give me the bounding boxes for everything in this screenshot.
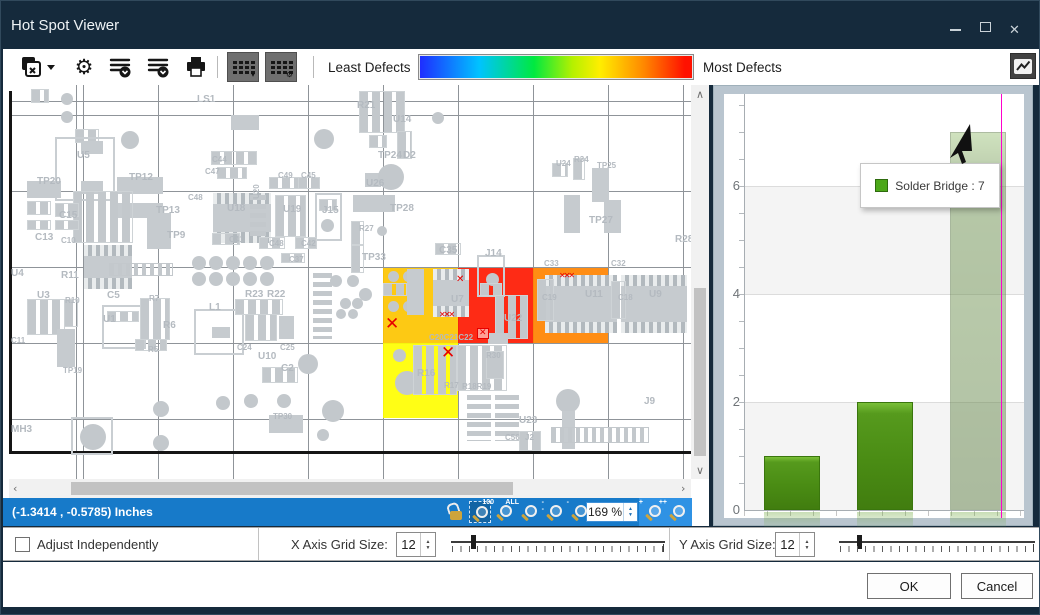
pcb-component [377,226,387,236]
grid-apply-icon [233,61,237,64]
settings-button[interactable]: ⚙ [69,53,99,81]
pcb-label: C44 [212,156,227,164]
y-axis-grid-size-value: 12 [776,533,799,556]
pcb-label: R21 [357,101,375,111]
y-axis-grid-size-label: Y Axis Grid Size: [679,537,776,552]
zoom-out-double-icon[interactable]: -- [544,501,566,523]
pcb-label: U1 [103,315,116,325]
slider-track[interactable] [839,541,1035,543]
pcb-component [109,263,173,276]
pcb-component [317,429,329,441]
settings-gear-icon: ⚙ [75,57,94,78]
pcb-label: R28 [675,235,691,245]
zoom-percent-value: 169 % [587,503,623,521]
pcb-component [217,167,247,179]
pcb-label: C48 [188,194,203,202]
pcb-component [212,327,230,338]
pcb-component [352,298,363,309]
pcb-label: TP24 [378,151,402,161]
pcb-component [551,427,649,443]
pcb-label: R6 [163,321,176,331]
pcb-label: R7 [149,295,159,303]
pcb-label: U18 [227,204,245,214]
pcb-label: TP28 [390,204,414,214]
chart-tooltip: Solder Bridge : 7 [860,163,1000,208]
cursor-coordinates: (-1.3414 , -0.5785) Inches [12,505,153,519]
pcb-component [348,309,358,319]
defect-marker-icon[interactable]: ✕✕✕ [439,311,453,319]
pcb-label: J2 [525,434,534,442]
pcb-component [330,275,342,287]
pcb-component [80,424,106,450]
most-defects-label: Most Defects [703,49,782,85]
close-button[interactable]: ✕ [1009,21,1023,33]
pcb-label: MH3 [11,425,32,435]
pcb-label: R34 [574,156,589,164]
pcb-label: U9 [649,290,662,300]
zoom-percent-spinner[interactable]: 169 % ▲▼ [586,502,638,522]
mouse-cursor-icon [946,122,976,171]
pcb-component [313,273,332,339]
pcb-component [61,93,73,105]
pcb-label: R27 [359,225,374,233]
pcb-label: U3 [37,291,50,301]
chart-crosshair-line [1001,94,1002,518]
pcb-component [216,396,230,410]
pcb-component [545,275,617,333]
pcb-label: C47 [205,168,220,176]
pcb-label: C18 [618,294,633,302]
y-axis-line [744,94,745,510]
pcb-component [192,272,206,286]
defect-bar-chart[interactable]: 0246Solder Bridge : 7 [724,94,1024,518]
y-axis-grid-size-spinner[interactable]: 12 ▲▼ [775,532,815,557]
pcb-canvas[interactable]: LS1U5TP20TP12TP13TP9C15C13C10R11U3R10U1C… [9,85,691,479]
divider [258,528,259,560]
pcb-label: U23 [519,416,537,426]
pcb-component [57,329,75,367]
pcb-label: U11 [585,290,603,300]
pcb-label: J14 [485,249,502,259]
pcb-component [231,115,259,130]
pcb-label: C33 [544,260,559,268]
print-icon [184,56,208,78]
pcb-component [621,275,687,333]
pcb-label: C20C21C22 [429,334,473,342]
pcb-component [192,256,206,270]
close-icon: ✕ [1009,23,1020,38]
adjust-independently-checkbox[interactable] [15,537,30,552]
pcb-label: C48 [269,240,284,248]
pcb-label: C49 [278,172,293,180]
divider [669,528,670,560]
pcb-label: TP12 [129,173,153,183]
adjust-independently-label: Adjust Independently [37,537,158,552]
pcb-label: J9 [644,397,655,407]
pcb-label: C37 [289,256,304,264]
pcb-component [556,389,580,413]
y-axis-tick-label: 6 [724,178,740,193]
horizontal-scroll-thumb[interactable] [71,482,513,495]
slider-track[interactable] [451,541,665,543]
pcb-component [314,129,334,149]
pcb-component [27,220,51,230]
toolbar-separator [313,56,314,78]
pcb-component [260,272,274,286]
x-axis-grid-size-spinner[interactable]: 12 ▲▼ [396,532,436,557]
pcb-label: C19 [542,294,557,302]
pcb-component [243,272,257,286]
pcb-label: C5 [107,291,120,301]
chart-toggle-icon [1012,56,1034,76]
pcb-label: U20 [253,184,261,199]
slider-ticks [452,546,664,552]
pcb-label: U26 [366,179,384,189]
pcb-label: U14 [393,115,411,125]
pcb-label: C24 [237,344,252,352]
pcb-label: R16 [417,369,435,379]
pcb-component [61,111,73,123]
pcb-label: TP9 [167,231,185,241]
pcb-label: U7 [451,295,464,305]
y-axis-tick-label: 0 [724,502,740,517]
pcb-component [244,394,258,408]
pcb-label: R30 [486,352,501,360]
scroll-left-icon[interactable]: ‹ [13,483,17,494]
pcb-viewer-panel: LS1U5TP20TP12TP13TP9C15C13C10R11U3R10U1C… [3,85,709,526]
pcb-component [153,435,169,451]
pcb-label: C32 [611,260,626,268]
pcb-label: C15 [59,211,77,221]
pcb-component [322,400,344,422]
pcb-label: C45 [301,172,316,180]
grid-apply-button[interactable]: ▾ [227,52,259,82]
pcb-component [359,91,405,133]
pcb-label: C35 [439,246,457,256]
grid-settings-badge-icon: ⚙ [286,71,293,79]
layers-export-icon [19,56,43,78]
footer: OK Cancel [3,562,1039,607]
ok-button[interactable]: OK [867,573,951,599]
pcb-label: J15 [322,206,339,216]
pcb-component [393,349,406,362]
hot-spot-viewer-window: Hot Spot Viewer ✕ ⚙ [0,0,1040,615]
pcb-component [321,219,334,232]
chart-bar[interactable] [764,456,820,510]
pcb-label: TP30 [273,413,292,421]
pcb-component [347,275,359,287]
pcb-label: U10 [258,352,276,362]
pcb-label: D2 [403,151,416,161]
grid-size-controls: Adjust Independently X Axis Grid Size: 1… [3,527,1039,561]
spinner-arrows-icon[interactable]: ▲▼ [799,533,814,556]
pcb-component [275,195,306,237]
pcb-component [153,401,169,417]
pcb-label: C25 [280,344,295,352]
pcb-component [592,168,609,202]
spinner-arrows-icon[interactable]: ▲▼ [623,503,637,521]
status-bar: (-1.3414 , -0.5785) Inches 169 % ▲▼ 100A… [3,498,692,526]
pcb-component [298,354,318,374]
pcb-component [260,256,274,270]
maximize-button[interactable] [979,21,993,33]
pcb-component [27,201,51,215]
tooltip-text: Solder Bridge : 7 [895,179,984,193]
pcb-component [245,314,277,341]
title-bar: Hot Spot Viewer [1,1,1039,49]
pcb-component [279,316,294,339]
pcb-component [388,271,399,282]
defect-source-icon [108,56,132,78]
minimize-icon [950,29,961,31]
zoom-in-double-icon[interactable]: ++ [667,501,689,523]
pcb-component [226,272,240,286]
pcb-label: C11 [11,337,25,345]
pcb-label: U19 [283,205,301,215]
pcb-label: R18R19 [462,383,491,391]
y-axis-tick-label: 4 [724,286,740,301]
pcb-label: TP20 [37,177,61,187]
pcb-component [277,394,291,408]
dropdown-caret-icon [47,65,55,70]
pcb-label: R22 [267,290,285,300]
y-axis-grid-size-slider[interactable] [839,531,1035,559]
pcb-label: R5 [148,346,158,354]
pcb-label: C56 [505,434,520,442]
print-button[interactable] [179,53,213,81]
defect-marker-icon[interactable]: ✕✕✕ [559,272,573,280]
pcb-component [121,131,139,149]
scroll-down-icon[interactable]: ∨ [696,465,704,476]
pcb-component [73,191,133,243]
pcb-label: C10 [61,237,76,245]
pcb-component [383,283,407,296]
unlock-icon[interactable] [444,501,466,523]
grid-settings-icon [271,61,275,64]
pcb-label: TP13 [156,206,180,216]
pcb-component [353,195,395,212]
horizontal-scrollbar[interactable]: ‹ › [9,479,691,498]
spinner-arrows-icon[interactable]: ▲▼ [420,533,435,556]
defect-source-alt-icon [146,56,170,78]
y-axis-tick-label: 2 [724,394,740,409]
pcb-label: R11 [61,271,79,281]
pcb-label: TP25 [597,162,616,170]
pcb-component [209,256,223,270]
defect-source-button[interactable] [103,53,137,81]
pcb-component [235,299,283,315]
pcb-label: U24 [556,160,571,168]
pcb-label: R17 [444,382,459,390]
vertical-scroll-thumb[interactable] [694,288,706,456]
pcb-component [226,256,240,270]
defect-marker-icon[interactable]: ✕ [456,275,464,285]
least-defects-label: Least Defects [328,49,411,85]
x-axis-grid-size-value: 12 [397,533,420,556]
defect-marker-icon[interactable]: ✕ [441,345,455,361]
export-defects-button[interactable] [15,53,59,81]
pcb-label: TP27 [589,216,613,226]
pcb-component [250,195,266,239]
pcb-component [467,395,491,441]
toolbar: ⚙ ▾ ⚙ [3,49,1039,85]
chart-toggle-button[interactable] [1010,53,1036,79]
maximize-icon [980,22,991,32]
toolbar-separator [217,56,218,78]
pcb-label: LS1 [197,95,215,105]
defect-marker-icon[interactable]: ✕ [477,328,489,339]
chart-bar[interactable] [857,402,913,510]
pcb-component [407,269,424,315]
zoom-out-icon[interactable]: - [569,501,591,523]
pcb-label: R10 [65,297,80,305]
pcb-component [564,195,580,233]
pcb-label: U5 [77,151,90,161]
legend-swatch-icon [875,179,888,192]
pcb-component [55,220,79,230]
pcb-component [209,272,223,286]
pcb-label: TP33 [362,253,386,263]
window-controls: ✕ [949,21,1023,33]
pcb-component [336,309,346,319]
cancel-button[interactable]: Cancel [961,573,1033,599]
defect-color-scale [418,54,694,80]
grid-apply-badge-icon: ▾ [251,71,255,79]
pcb-label: TP19 [63,367,82,375]
pcb-label: L1 [209,303,221,313]
pcb-component [488,333,508,344]
pcb-label: C42 [301,240,316,248]
pcb-label: C2 [281,364,294,374]
pcb-label: U4 [11,269,24,279]
scroll-up-icon[interactable]: ∧ [696,89,704,100]
x-axis-grid-size-slider[interactable] [451,531,665,559]
x-axis-grid-size-label: X Axis Grid Size: [291,537,388,552]
pcb-component [432,112,444,124]
pcb-component [31,89,49,103]
pcb-label: C41 [229,236,244,244]
zoom-all-icon[interactable]: ALL [519,501,541,523]
pcb-component [388,301,399,312]
defect-chart-panel: 0246Solder Bridge : 7 [713,85,1033,526]
window-title: Hot Spot Viewer [11,17,119,34]
pcb-component [369,135,387,148]
grid-settings-button[interactable]: ⚙ [265,52,297,82]
vertical-scrollbar[interactable]: ∧ ∨ [691,85,709,479]
minimize-button[interactable] [949,21,963,33]
pcb-component [140,298,170,340]
pcb-label: R23 [245,290,263,300]
defect-marker-icon[interactable]: ✕ [385,316,399,332]
slider-ticks [840,546,1034,552]
defect-source-alt-button[interactable] [141,53,175,81]
scroll-right-icon[interactable]: › [681,483,685,494]
pcb-component [243,256,257,270]
pcb-label: U22 [504,314,522,324]
pcb-label: C13 [35,233,53,243]
pcb-component [340,298,351,309]
